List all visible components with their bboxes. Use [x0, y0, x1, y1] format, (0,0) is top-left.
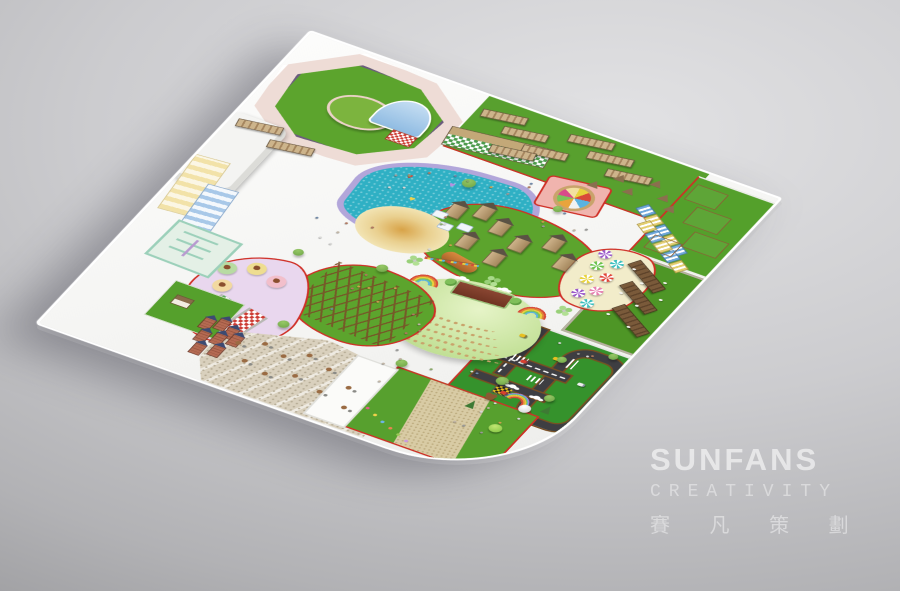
bear-mascot [483, 393, 497, 401]
visitor [344, 222, 348, 225]
clover-tree [558, 305, 568, 311]
garden-house [170, 294, 195, 309]
visitor [527, 186, 531, 189]
visitor [395, 349, 399, 352]
round-table [244, 261, 270, 277]
visitor [429, 368, 433, 371]
visitor [584, 228, 588, 231]
watermark-brand: SUNFANS [650, 442, 866, 478]
clover-tree [409, 255, 419, 261]
park-masterplan-plate: ♥ ♥ ♥ ♥ [35, 30, 783, 492]
visitor [318, 236, 322, 239]
round-tree [291, 248, 306, 257]
apple-sculpture [486, 423, 505, 434]
round-table [209, 277, 235, 293]
pine-tree [540, 405, 555, 415]
rainbow-arch [517, 303, 553, 320]
render-canvas: { "scene": { "description": "Isometric 3… [0, 0, 900, 591]
round-table [263, 274, 289, 290]
watermark-subtitle: CREATIVITY [650, 482, 866, 502]
visitor [529, 182, 533, 185]
visitor [315, 216, 319, 219]
visitor [572, 229, 576, 232]
visitor [329, 243, 333, 246]
watermark: SUNFANS CREATIVITY 賽 凡 策 劃 [650, 442, 866, 538]
heart-float: ♥ [446, 182, 457, 190]
heart-float: ♥ [406, 196, 417, 204]
visitor [336, 231, 340, 234]
visitor [563, 212, 567, 215]
sports-field [253, 50, 464, 173]
watermark-chinese: 賽 凡 策 劃 [650, 509, 866, 538]
